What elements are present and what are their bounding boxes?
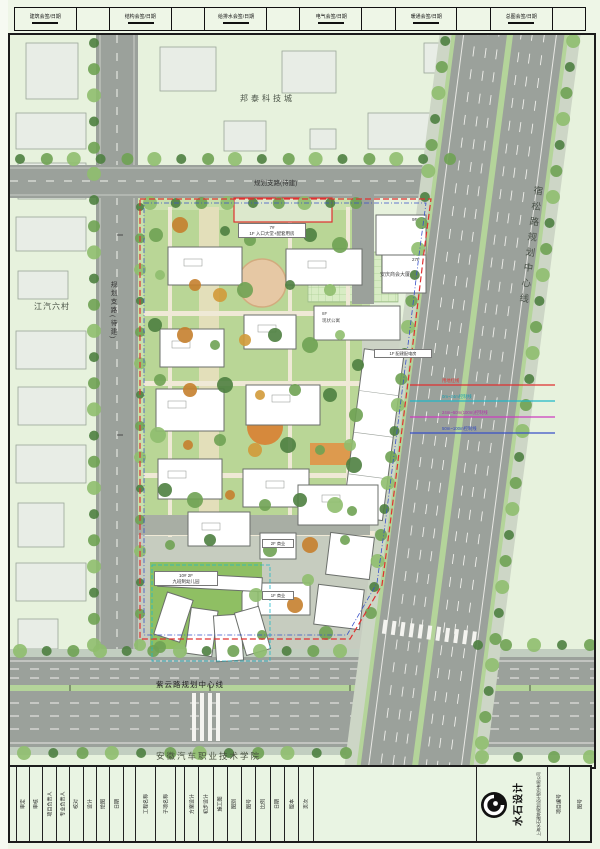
signature-line [223,22,249,25]
signature-line [413,22,439,25]
shop2-label: 1F 商业 [262,591,294,600]
road-label-top: 规划支路(待建) [254,177,297,187]
anqing-name: 安庆商会大厦 [380,271,410,278]
tb-field-label: 日期 [274,799,281,809]
tb-field-label: 项目负责人 [46,791,53,816]
area-label-college: 安徽汽车职业技术学院 [156,750,261,762]
tb-field: 日期 [110,767,123,841]
tb-field-subproject: 子项名称 [156,767,176,841]
tb-field: 项目负责人 [43,767,56,841]
entrance-use: 1F 入口大堂+配套用房 [241,231,303,237]
kindergarten-name: 九班制幼儿园 [157,579,215,585]
tb-field: 审核 [30,767,43,841]
signoff-blank [456,7,489,31]
tb-field-label: 版本 [288,799,295,809]
signature-line [32,22,58,25]
signoff-cell-struct: 结构会签/日期 [109,7,171,31]
site-plan-svg [10,35,594,767]
tb-field-label: 绘图 [100,799,107,809]
tb-field-label: 校对 [73,799,80,809]
drawing-sheet: 建筑会签/日期 结构会签/日期 给排水会签/日期 电气会签/日期 暖通会签/日期… [0,0,600,849]
road-label-ziyun: 紫云路规划中心线 [156,679,224,690]
signoff-cell-elec: 电气会签/日期 [299,7,361,31]
site-plan-frame: 邦泰科技城 江汽六村 规划支路(待建) 规划支路(待建) 宿松路规划中心线 紫云… [8,33,596,769]
area-label-jiangqi: 江汽六村 [34,301,70,312]
tb-spacer [10,767,17,841]
signoff-blank [76,7,109,31]
anqing-floors-podium: 9F [412,217,417,222]
power-room-label: 1F 配建配电房 [374,349,432,358]
tb-field-drawingno: 图号 [570,767,590,841]
shop1-label: 2F 商业 [262,539,294,548]
tb-field: 绘图 [97,767,110,841]
tb-field-label: 工程名称 [142,794,149,814]
signoff-label: 总图会签/日期 [506,14,537,19]
signature-line [318,22,344,25]
title-block: 审定 审核 项目负责人 专业负责人 校对 设计 绘图 日期 工程名称 子项名称 … [8,765,592,843]
tb-field-label: 子项名称 [162,794,169,814]
tb-field: 比例 [256,767,270,841]
signoff-blank [171,7,204,31]
tb-field-label: 方案设计 [188,794,195,814]
tb-field-label: 施工图 [217,796,224,811]
signoff-blank [361,7,394,31]
tb-field: 日期 [271,767,285,841]
tb-field-label: 日期 [113,799,120,809]
entrance-label: 7# 1F 入口大堂+配套用房 [238,223,306,238]
tb-field-label: 审定 [19,799,26,809]
signature-line [128,22,154,25]
tb-field: 版本 [285,767,299,841]
tb-field: 图号 [242,767,256,841]
tb-field-label: 图别 [231,799,238,809]
tb-field-project: 工程名称 [136,767,156,841]
tb-field: 图别 [228,767,242,841]
signoff-label: 结构会签/日期 [125,14,156,19]
tb-field: 审定 [17,767,30,841]
tb-spacer [176,767,185,841]
signoff-label: 给排水会签/日期 [218,14,254,19]
tb-field: 初步设计 [199,767,213,841]
area-label-bangtai: 邦泰科技城 [240,93,295,104]
signoff-label: 建筑会签/日期 [30,14,61,19]
tb-field-label: 比例 [260,799,267,809]
tb-field-label: 页次 [303,799,310,809]
tb-field: 校对 [70,767,83,841]
signoff-blank [552,7,586,31]
signature-line [508,22,534,25]
tb-spacer [124,767,136,841]
tb-drawing-title-cell [314,767,477,841]
tb-field: 施工图 [214,767,228,841]
company-logo-icon [479,790,509,820]
tb-field-label: 审核 [33,799,40,809]
paper-left-margin [0,0,8,849]
apartment-name: 现状公寓 [322,318,340,324]
tb-field-label: 初步设计 [202,794,209,814]
signoff-label: 电气会签/日期 [315,14,346,19]
apartment-floors: 8F [322,311,327,316]
tb-field-label: 设计 [86,799,93,809]
tb-field-label: 图号 [245,799,252,809]
tb-field: 设计 [84,767,97,841]
signoff-cell-siteplan: 总图会签/日期 [490,7,552,31]
signoff-blank [266,7,299,31]
control-label-blue: 50m~100m控制线 [442,426,477,432]
tb-field-projectno: 项目编号 [548,767,570,841]
kindergarten-label: 10# 2F 九班制幼儿园 [154,571,218,586]
signoff-row: 建筑会签/日期 结构会签/日期 给排水会签/日期 电气会签/日期 暖通会签/日期… [14,7,586,31]
signoff-cell-hvac: 暖通会签/日期 [395,7,457,31]
tb-field-label: 专业负责人 [60,791,67,816]
control-label-magenta: 24m~50m(100m)控制线 [442,410,488,416]
company-logo-text: 水石设计 [509,782,524,826]
company-name: 上海水石建筑规划设计股份有限公司 [536,772,542,836]
tb-field-label: 项目编号 [555,794,562,814]
signoff-cell-plumb: 给排水会签/日期 [204,7,266,31]
anqing-floors-tower: 27F [412,257,420,262]
tb-field: 专业负责人 [57,767,70,841]
signoff-label: 暖通会签/日期 [410,14,441,19]
tb-field: 页次 [299,767,313,841]
tb-logo-cell: 水石设计 上海水石建筑规划设计股份有限公司 [477,767,548,841]
signoff-cell-arch: 建筑会签/日期 [14,7,76,31]
control-label-red: 用地红线 [442,378,459,384]
tb-field: 方案设计 [185,767,199,841]
tb-field-label: 图号 [577,799,584,809]
road-label-left: 规划支路(待建) [107,281,117,340]
control-label-cyan: 0m~24m控制线 [442,394,472,400]
